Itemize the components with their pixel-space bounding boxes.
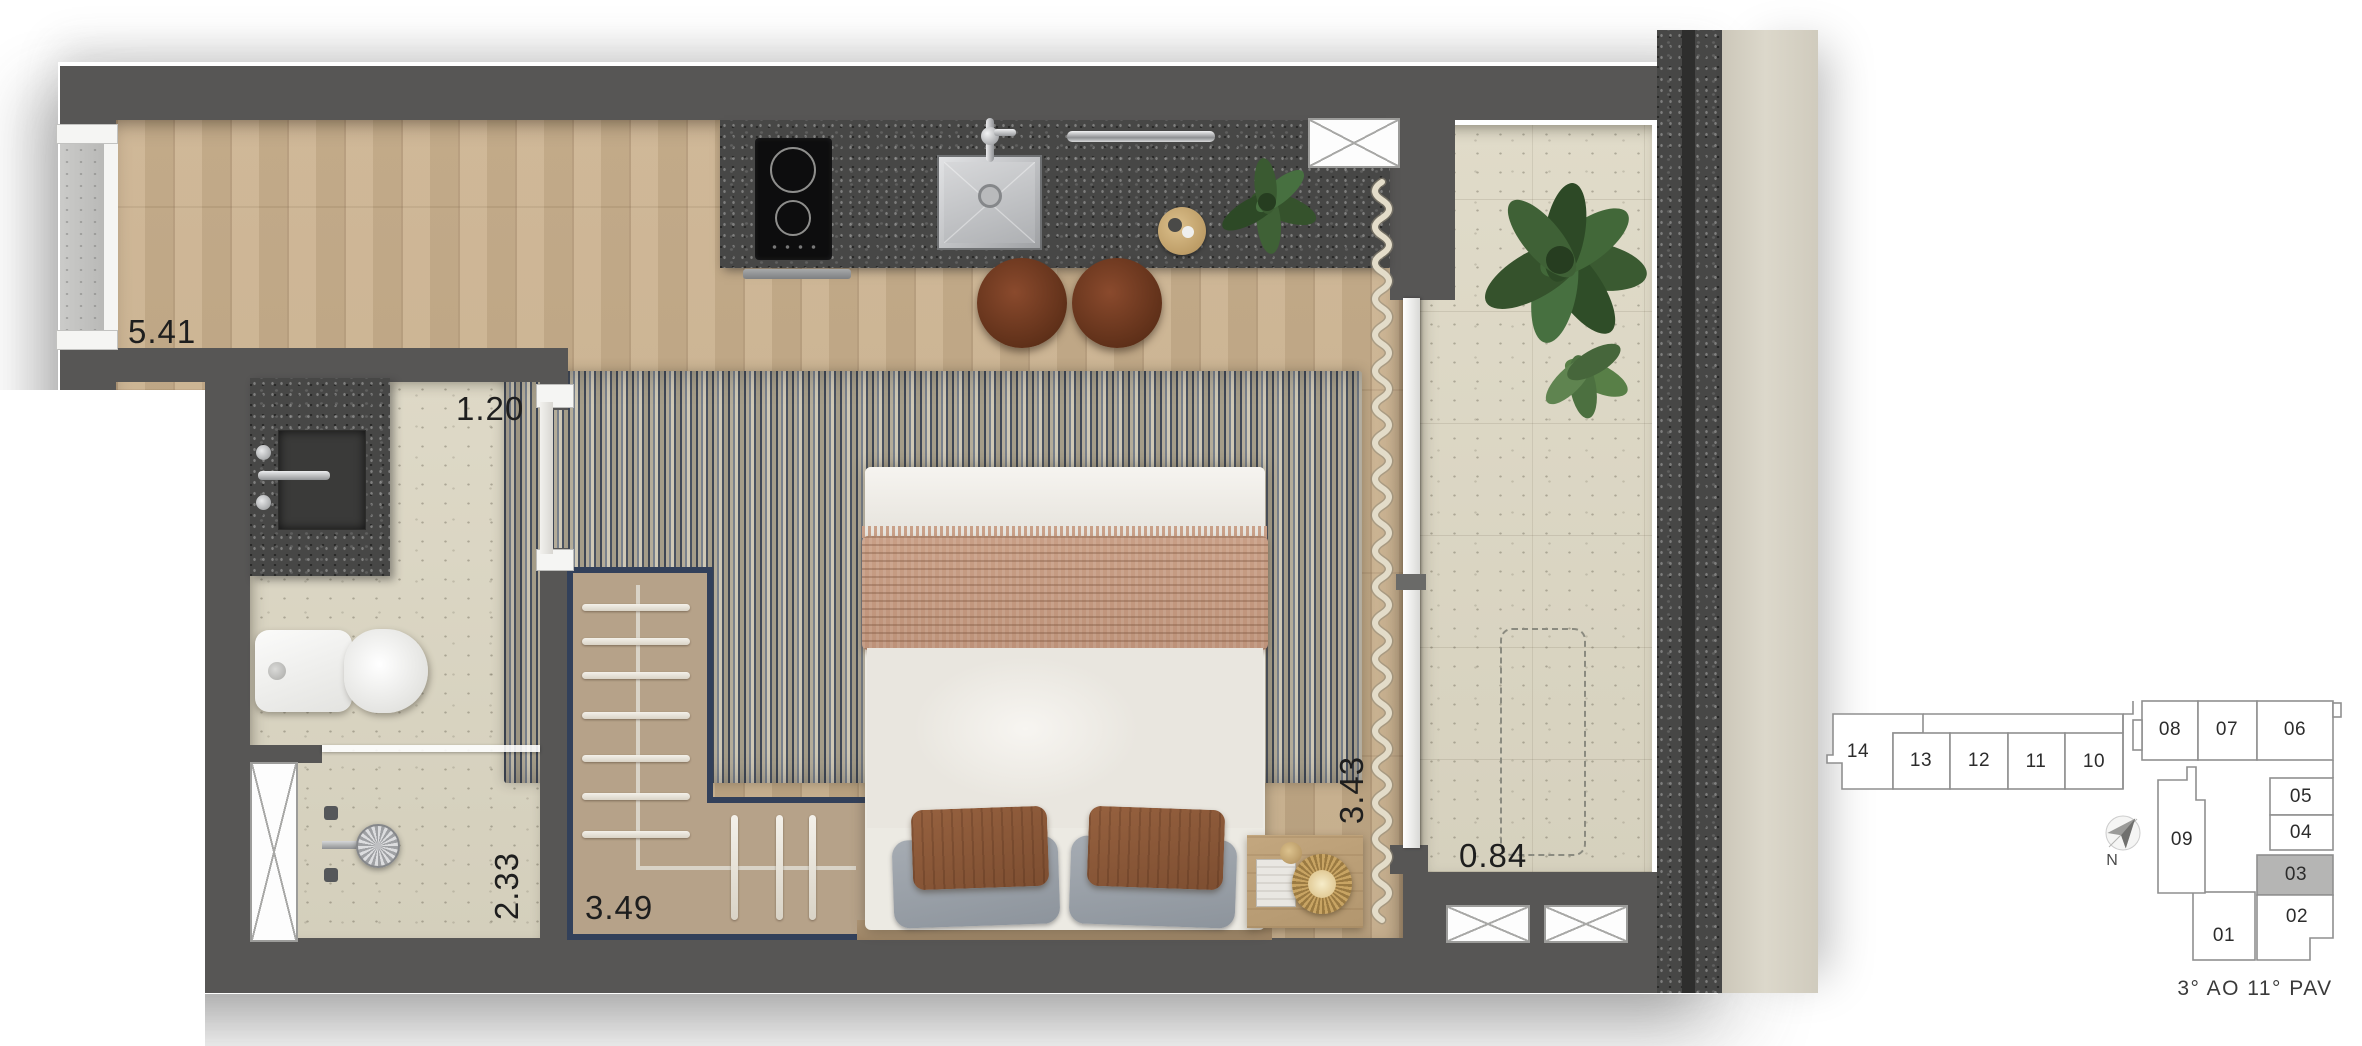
balcony-dashed-outline: [1500, 628, 1586, 856]
closet-hanger: [809, 815, 816, 920]
shower-knob: [324, 806, 338, 820]
keyplan-unit-05[interactable]: 05: [2290, 786, 2312, 808]
window-glass: [60, 144, 106, 330]
closet-hanger: [582, 638, 690, 645]
duct-crossbox: [250, 762, 298, 942]
keyplan-unit-03-highlighted[interactable]: 03: [2285, 864, 2307, 886]
bed-sheet: [867, 648, 1263, 828]
shower-head: [356, 824, 400, 868]
dimension-label-balcony: 0.84: [1459, 837, 1527, 875]
closet-hanger: [582, 831, 690, 838]
sink-drain: [978, 184, 1002, 208]
cooktop-controls: [768, 245, 820, 249]
keyplan-unit-06[interactable]: 06: [2284, 719, 2306, 741]
wall: [205, 938, 1657, 993]
shower-glass-partition: [322, 745, 540, 752]
wall-shower-stub: [205, 745, 322, 763]
dimension-label-living: 5.41: [128, 313, 196, 351]
closet-hanger: [582, 755, 690, 762]
keyplan-unit-07[interactable]: 07: [2216, 719, 2238, 741]
vanity-knob: [256, 495, 271, 510]
decor-plate-fruit: [1182, 226, 1194, 238]
closet-hanger: [582, 672, 690, 679]
closet-hanger: [582, 793, 690, 800]
dimension-label-closet: 3.49: [585, 889, 653, 927]
north-compass-icon: [2106, 811, 2144, 850]
closet-hanger: [731, 815, 738, 920]
balcony-crossbox: [1446, 905, 1530, 943]
vanity-spout: [258, 471, 330, 480]
table-lamp-glow: [1308, 870, 1336, 898]
toilet-bowl: [344, 629, 428, 713]
kitchen-rail: [1067, 131, 1215, 142]
floor-plan-page: 5.41 1.20 2.33 3.49 3.43 0.84: [0, 0, 2362, 1046]
wall: [60, 348, 568, 382]
stool: [1072, 258, 1162, 348]
bathroom-door-leaf: [540, 402, 553, 554]
keyplan-unit-04[interactable]: 04: [2290, 822, 2312, 844]
keyplan-unit-12[interactable]: 12: [1968, 750, 1990, 772]
cooktop-burner: [770, 147, 816, 193]
wall: [60, 66, 1657, 120]
bed-knit-throw: [862, 536, 1268, 650]
nightstand-dish: [1280, 842, 1302, 864]
keyplan-caption: 3° AO 11° PAV: [2177, 977, 2332, 1001]
window-frame: [56, 330, 118, 350]
toilet-flush-button: [268, 662, 286, 680]
keyplan-unit-02[interactable]: 02: [2286, 906, 2308, 928]
keyplan-unit-08[interactable]: 08: [2159, 719, 2181, 741]
sink-faucet-bar: [994, 129, 1016, 136]
keyplan-unit-09[interactable]: 09: [2171, 829, 2193, 851]
pillow-brown: [1087, 806, 1226, 891]
counter-handle-rail: [743, 269, 851, 279]
dimension-label-bedroom: 3.43: [1335, 750, 1369, 830]
dimension-label-hall: 1.20: [456, 390, 524, 428]
nightstand-book: [1256, 859, 1296, 907]
stool: [977, 258, 1067, 348]
outside-area: [0, 390, 205, 1046]
balcony-crossbox: [1544, 905, 1628, 943]
closet-hanger: [582, 712, 690, 719]
vanity-basin: [278, 430, 366, 530]
north-label: N: [2106, 852, 2118, 870]
dimension-label-bathroom: 2.33: [490, 846, 524, 926]
window-sill: [104, 144, 118, 330]
key-plan: 14 13 12 11 10 08 07 06 09 05 04 03 02 0…: [1822, 692, 2356, 1022]
keyplan-unit-11[interactable]: 11: [2026, 751, 2047, 773]
shower-knob: [324, 868, 338, 882]
cooktop-burner: [775, 200, 811, 236]
keyplan-unit-01[interactable]: 01: [2213, 925, 2235, 947]
vanity-knob: [256, 445, 271, 460]
key-plan-outline: [1822, 692, 2356, 1022]
closet-hanger: [582, 604, 690, 611]
keyplan-unit-10[interactable]: 10: [2083, 751, 2105, 773]
closet-hanger: [776, 815, 783, 920]
balcony-plant-icon: [1445, 115, 1685, 465]
neighbor-slab: [1722, 30, 1818, 993]
wall: [205, 382, 250, 993]
keyplan-unit-13[interactable]: 13: [1910, 750, 1932, 772]
sliding-door-track: [1403, 298, 1420, 848]
keyplan-unit-14[interactable]: 14: [1847, 741, 1869, 763]
pillow-brown: [911, 806, 1050, 891]
window-frame: [56, 124, 118, 144]
decor-plate-fruit: [1168, 218, 1182, 232]
counter-plant-icon: [1205, 120, 1325, 270]
